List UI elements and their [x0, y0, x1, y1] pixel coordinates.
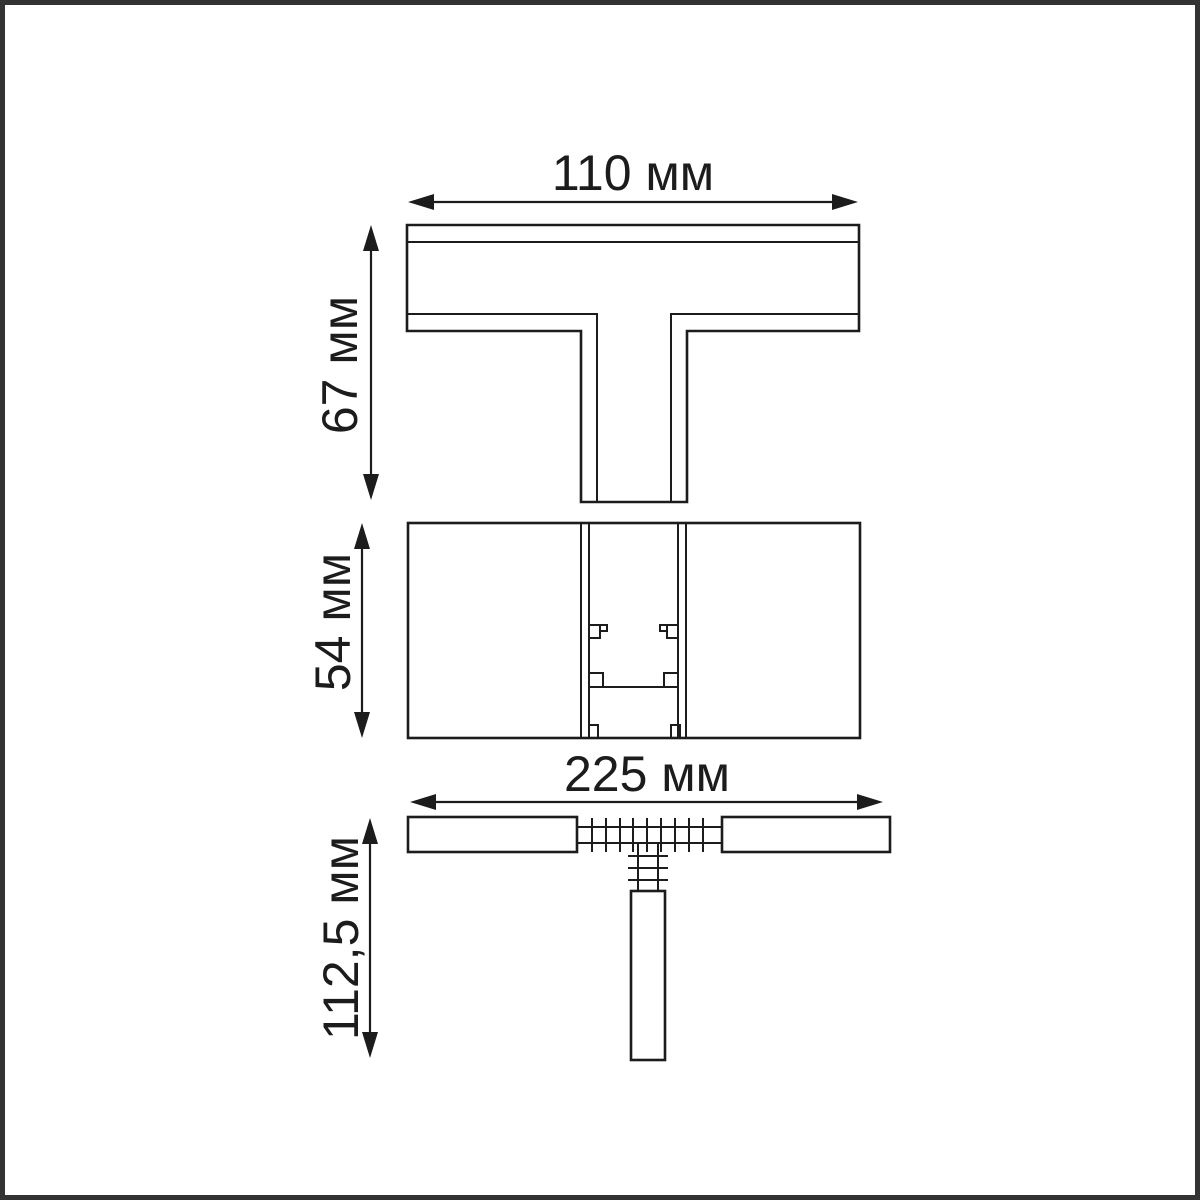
dim-top-width-arrowhead-left — [408, 194, 434, 210]
page: 110 мм 67 мм — [0, 0, 1200, 1200]
middle-view-upper-tab-left — [589, 625, 600, 638]
top-view-inner-right-wall — [671, 314, 859, 502]
middle-view-mid-clip-left — [589, 673, 603, 687]
bottom-side-view — [408, 817, 890, 1060]
dim-top-height-arrowhead-top — [363, 225, 379, 251]
dim-bottom-width-label: 225 мм — [564, 746, 730, 802]
dim-middle-height-arrowhead-bottom — [354, 712, 370, 738]
top-view-inner-left-wall — [407, 314, 597, 502]
middle-view-bottom-clip-left — [589, 725, 598, 738]
dim-bottom-width-arrowhead-right — [857, 794, 883, 810]
bottom-view-right-track — [722, 817, 890, 852]
dim-middle-height-label: 54 мм — [305, 553, 361, 691]
middle-view-upper-tab-right-tip — [660, 625, 667, 631]
middle-view-mid-clip-right — [664, 673, 678, 687]
middle-view-upper-tab-right — [667, 625, 678, 638]
dim-top-width-arrowhead-right — [832, 194, 858, 210]
dim-top-height-arrowhead-bottom — [363, 474, 379, 500]
technical-drawing: 110 мм 67 мм — [0, 0, 1200, 1200]
bottom-view-horizontal-connector — [577, 818, 722, 852]
dim-top-width-label: 110 мм — [552, 145, 714, 201]
bottom-view-left-track — [408, 817, 577, 852]
dim-top-width: 110 мм — [408, 145, 858, 210]
middle-view-upper-tab-left-tip — [600, 625, 607, 631]
middle-view-body — [408, 523, 860, 738]
dim-bottom-width-arrowhead-left — [410, 794, 436, 810]
dim-middle-height: 54 мм — [305, 523, 370, 738]
dim-bottom-height-arrowhead-bottom — [362, 1032, 378, 1058]
dim-bottom-height-label: 112,5 мм — [313, 836, 369, 1040]
top-view — [407, 225, 859, 502]
middle-section-view — [408, 523, 860, 738]
bottom-view-stem-track — [631, 891, 665, 1060]
top-view-outer-contour — [407, 225, 859, 502]
dim-bottom-width: 225 мм — [410, 746, 883, 810]
dim-top-height: 67 мм — [312, 225, 379, 500]
dim-middle-height-arrowhead-top — [354, 523, 370, 549]
dim-top-height-label: 67 мм — [312, 296, 368, 434]
dim-bottom-height-arrowhead-top — [362, 818, 378, 844]
dim-bottom-height: 112,5 мм — [313, 818, 378, 1058]
